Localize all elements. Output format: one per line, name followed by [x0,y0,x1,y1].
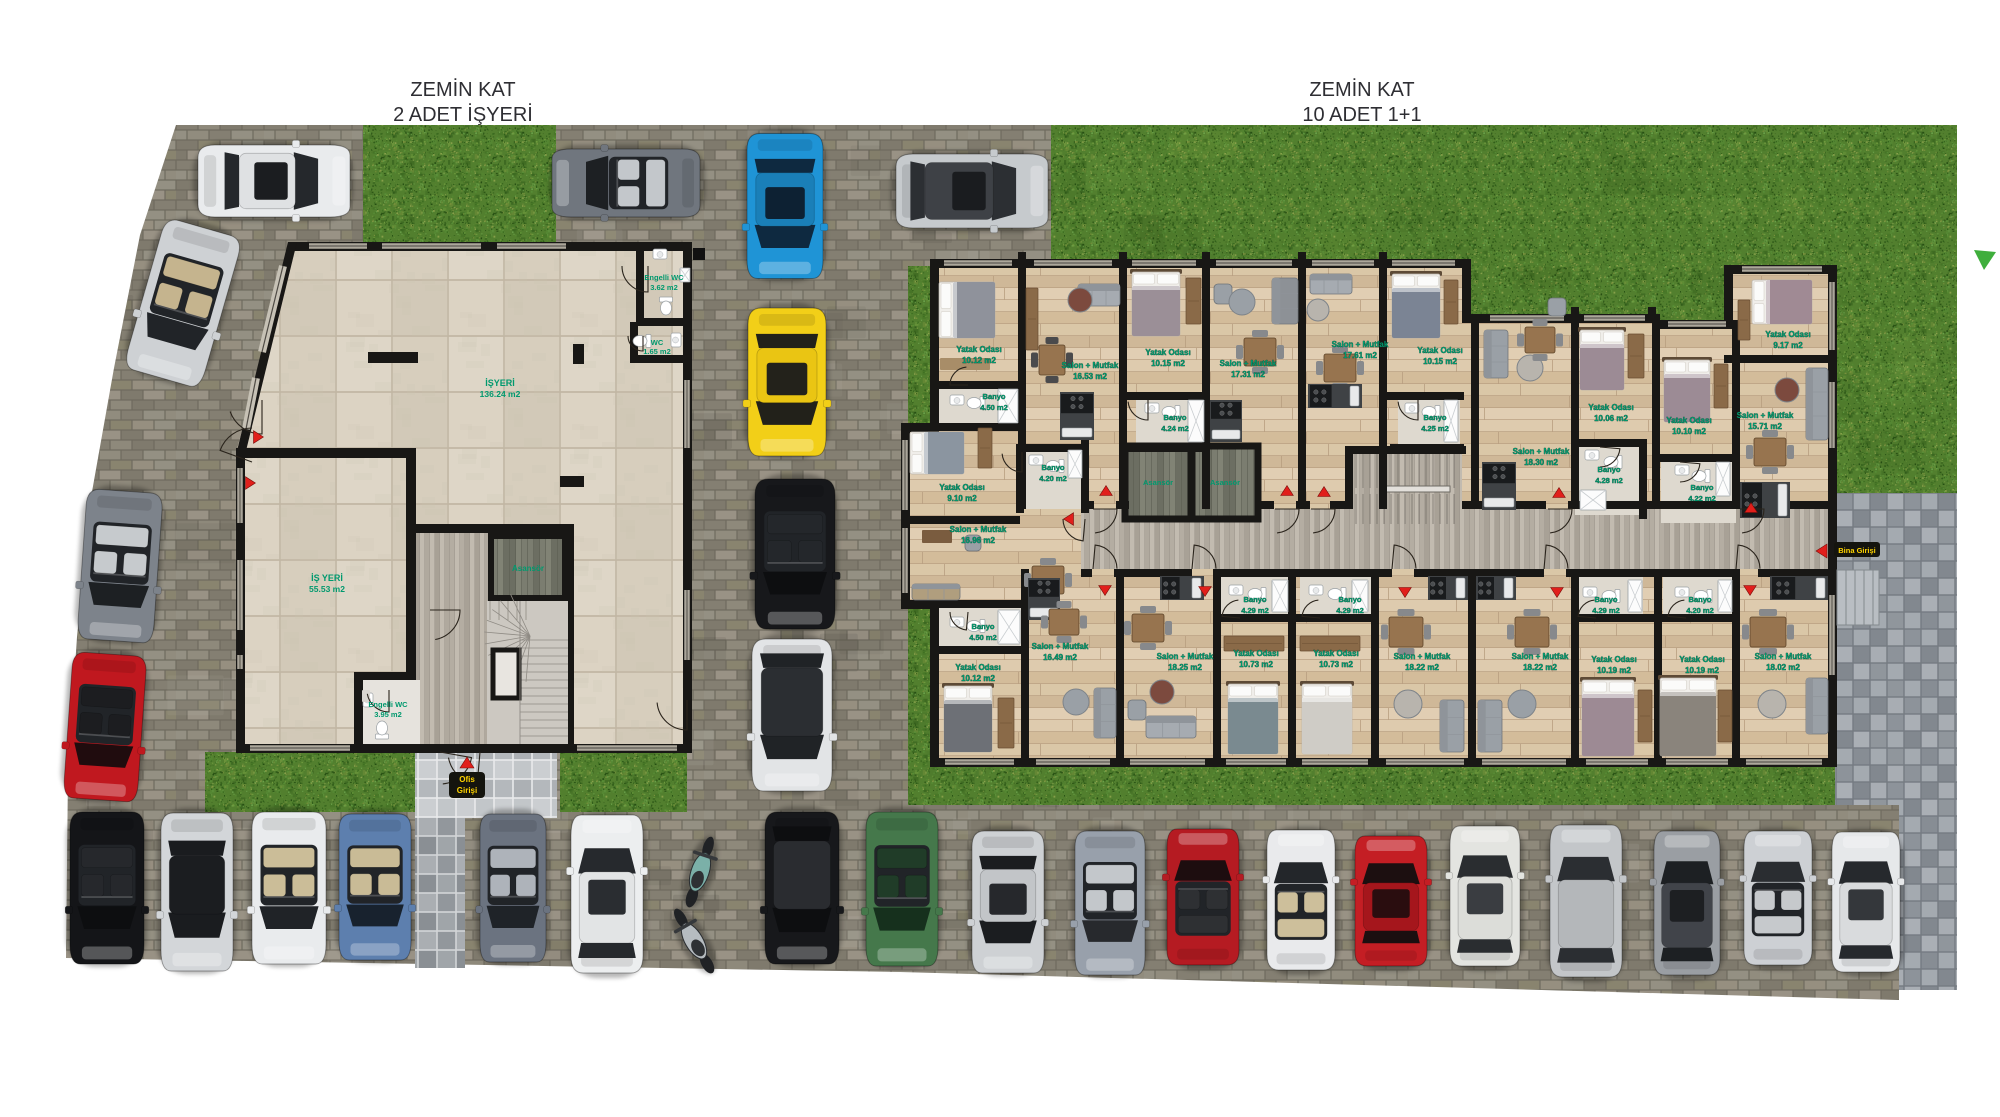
svg-text:İŞYERİ: İŞYERİ [485,378,515,388]
svg-text:10 ADET 1+1: 10 ADET 1+1 [1302,104,1421,126]
svg-text:Salon + Mutfak: Salon + Mutfak [1394,652,1451,661]
svg-text:3.95 m2: 3.95 m2 [374,710,402,719]
svg-text:Yatak Odası: Yatak Odası [1666,416,1711,425]
svg-text:Asansör: Asansör [1210,478,1240,487]
svg-text:Yatak Odası: Yatak Odası [956,345,1001,354]
svg-text:Yatak Odası: Yatak Odası [1679,655,1724,664]
svg-text:18.22 m2: 18.22 m2 [1405,663,1439,672]
svg-text:WC: WC [651,338,664,347]
svg-text:18.22 m2: 18.22 m2 [1523,663,1557,672]
svg-text:Banyo: Banyo [972,622,995,631]
svg-text:Engelli WC: Engelli WC [368,700,408,709]
svg-text:10.15 m2: 10.15 m2 [1151,359,1185,368]
svg-text:Salon + Mutfak: Salon + Mutfak [1032,642,1089,651]
svg-text:16.49 m2: 16.49 m2 [1043,653,1077,662]
svg-text:3.62 m2: 3.62 m2 [650,283,678,292]
svg-text:Girişi: Girişi [457,786,477,795]
svg-text:18.30 m2: 18.30 m2 [1524,458,1558,467]
svg-text:18.25 m2: 18.25 m2 [1168,663,1202,672]
svg-text:ZEMİN KAT: ZEMİN KAT [410,78,515,101]
svg-text:136.24 m2: 136.24 m2 [480,389,521,399]
svg-text:17.31 m2: 17.31 m2 [1231,370,1265,379]
svg-text:Asansör: Asansör [1143,478,1173,487]
svg-text:Banyo: Banyo [1164,413,1187,422]
svg-text:Banyo: Banyo [983,392,1006,401]
svg-text:9.17 m2: 9.17 m2 [1773,341,1803,350]
svg-text:Salon + Mutfak: Salon + Mutfak [1512,652,1569,661]
svg-text:Banyo: Banyo [1689,595,1712,604]
svg-text:Asansör: Asansör [512,564,544,573]
svg-text:4.29 m2: 4.29 m2 [1336,606,1364,615]
svg-text:10.06 m2: 10.06 m2 [1594,414,1628,423]
svg-text:9.10 m2: 9.10 m2 [947,494,977,503]
svg-text:Yatak Odası: Yatak Odası [1313,649,1358,658]
svg-text:10.10 m2: 10.10 m2 [1672,427,1706,436]
svg-text:10.15 m2: 10.15 m2 [1423,357,1457,366]
svg-text:Banyo: Banyo [1595,595,1618,604]
svg-text:Yatak Odası: Yatak Odası [1591,655,1636,664]
svg-text:Salon + Mutfak: Salon + Mutfak [950,525,1007,534]
svg-text:Yatak Odası: Yatak Odası [1588,403,1633,412]
svg-text:17.61 m2: 17.61 m2 [1343,351,1377,360]
svg-text:Engelli WC: Engelli WC [644,273,684,282]
svg-text:55.53 m2: 55.53 m2 [309,584,345,594]
svg-text:Yatak Odası: Yatak Odası [1233,649,1278,658]
svg-text:4.24 m2: 4.24 m2 [1161,424,1189,433]
svg-text:ZEMİN KAT: ZEMİN KAT [1309,78,1414,101]
svg-text:4.20 m2: 4.20 m2 [1039,474,1067,483]
svg-text:4.50 m2: 4.50 m2 [980,403,1008,412]
svg-text:4.50 m2: 4.50 m2 [969,633,997,642]
svg-text:Salon + Mutfak: Salon + Mutfak [1755,652,1812,661]
svg-text:16.96 m2: 16.96 m2 [961,536,995,545]
svg-text:Banyo: Banyo [1598,465,1621,474]
svg-text:Banyo: Banyo [1244,595,1267,604]
svg-text:16.53 m2: 16.53 m2 [1073,372,1107,381]
svg-text:4.28 m2: 4.28 m2 [1595,476,1623,485]
svg-text:10.19 m2: 10.19 m2 [1597,666,1631,675]
svg-text:18.02 m2: 18.02 m2 [1766,663,1800,672]
svg-text:Yatak Odası: Yatak Odası [955,663,1000,672]
svg-text:Banyo: Banyo [1042,463,1065,472]
svg-text:10.73 m2: 10.73 m2 [1239,660,1273,669]
svg-text:10.19 m2: 10.19 m2 [1685,666,1719,675]
svg-text:Yatak Odası: Yatak Odası [1765,330,1810,339]
svg-text:2 ADET İŞYERİ: 2 ADET İŞYERİ [393,103,533,126]
svg-text:Salon + Mutfak: Salon + Mutfak [1737,411,1794,420]
svg-text:Yatak Odası: Yatak Odası [1145,348,1190,357]
svg-text:15.71 m2: 15.71 m2 [1748,422,1782,431]
svg-text:4.25 m2: 4.25 m2 [1421,424,1449,433]
svg-text:10.12 m2: 10.12 m2 [961,674,995,683]
svg-text:1.65 m2: 1.65 m2 [643,347,671,356]
svg-text:Bina Girişi: Bina Girişi [1838,546,1876,555]
svg-text:Yatak Odası: Yatak Odası [1417,346,1462,355]
svg-text:Salon + Mutfak: Salon + Mutfak [1062,361,1119,370]
svg-text:Salon + Mutfak: Salon + Mutfak [1513,447,1570,456]
svg-text:Salon + Mutfak: Salon + Mutfak [1220,359,1277,368]
svg-text:10.73 m2: 10.73 m2 [1319,660,1353,669]
svg-text:Banyo: Banyo [1691,483,1714,492]
svg-text:Salon + Mutfak: Salon + Mutfak [1332,340,1389,349]
svg-text:Banyo: Banyo [1424,413,1447,422]
svg-text:Banyo: Banyo [1339,595,1362,604]
svg-text:10.12 m2: 10.12 m2 [962,356,996,365]
svg-text:Salon + Mutfak: Salon + Mutfak [1157,652,1214,661]
svg-text:4.29 m2: 4.29 m2 [1592,606,1620,615]
svg-text:İŞ YERİ: İŞ YERİ [311,573,343,583]
svg-text:Ofis: Ofis [459,775,475,784]
svg-text:4.22 m2: 4.22 m2 [1688,494,1716,503]
svg-text:4.29 m2: 4.29 m2 [1241,606,1269,615]
svg-text:Yatak Odası: Yatak Odası [939,483,984,492]
svg-text:4.20 m2: 4.20 m2 [1686,606,1714,615]
